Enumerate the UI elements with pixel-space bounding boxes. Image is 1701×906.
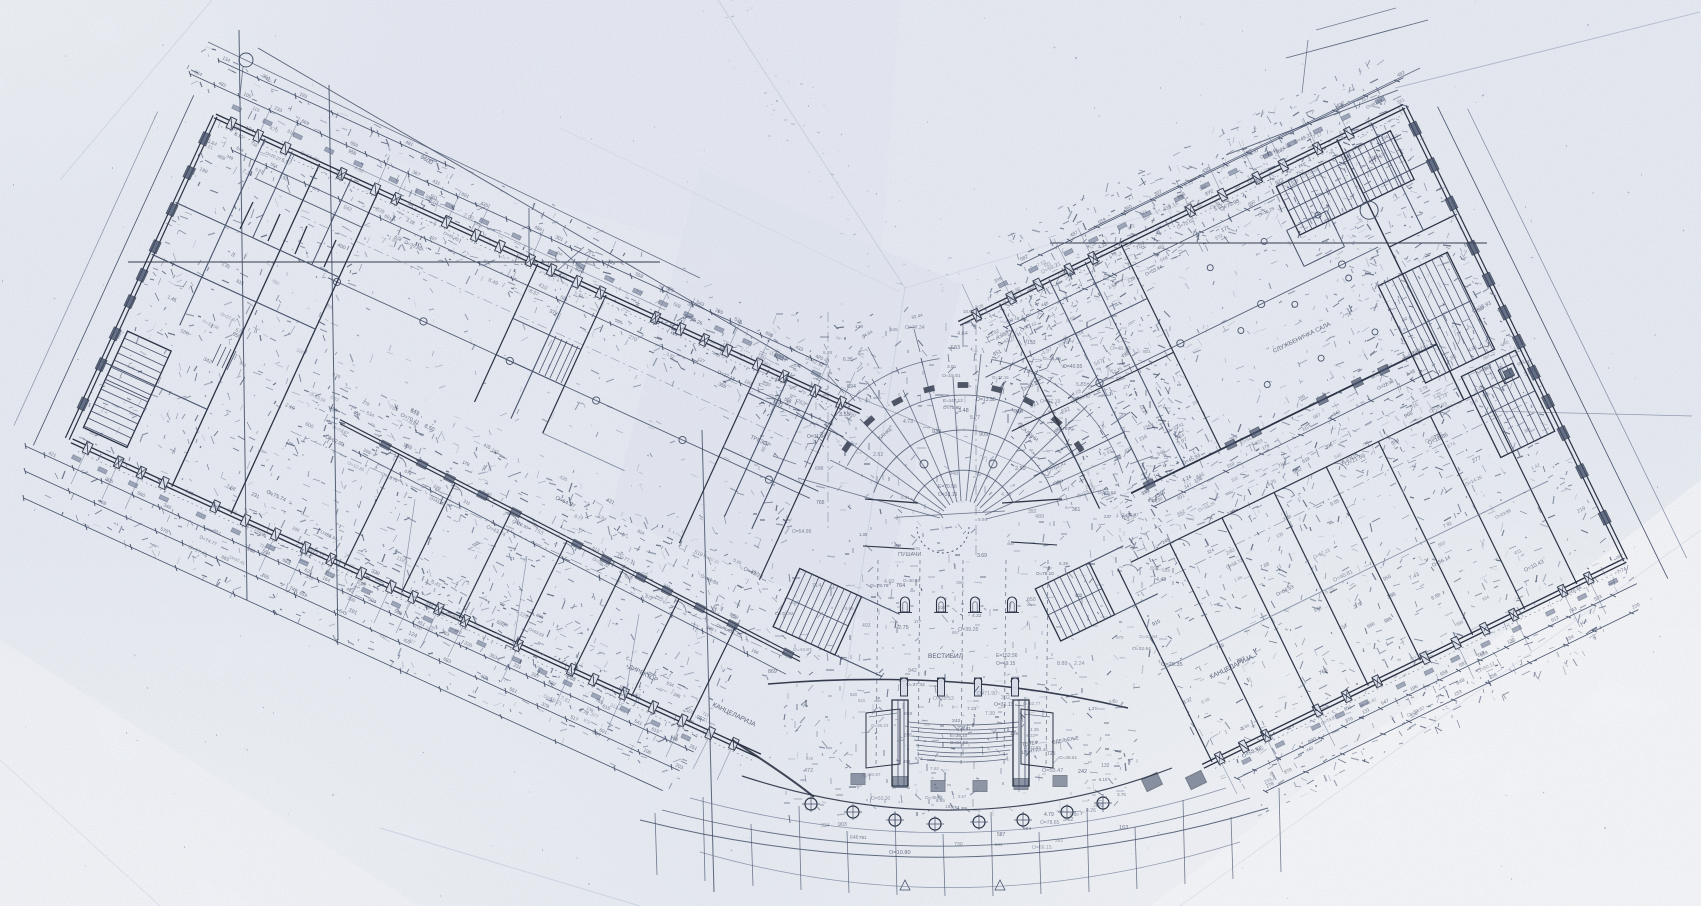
svg-text:10.04: 10.04 [963, 309, 975, 314]
svg-text:402: 402 [1075, 593, 1083, 598]
svg-text:488: 488 [1035, 514, 1044, 520]
svg-text:7.39: 7.39 [985, 711, 995, 717]
svg-text:801: 801 [1143, 349, 1151, 354]
svg-text:869: 869 [768, 669, 777, 675]
svg-text:O=31.13: O=31.13 [994, 702, 1014, 708]
svg-text:237: 237 [1104, 514, 1112, 519]
svg-text:472: 472 [804, 768, 813, 774]
svg-text:334: 334 [821, 823, 830, 829]
svg-text:189: 189 [945, 804, 953, 809]
svg-text:8.60: 8.60 [1109, 699, 1118, 704]
svg-text:793: 793 [1095, 803, 1104, 809]
svg-text:493: 493 [862, 623, 871, 629]
svg-text:132: 132 [1101, 763, 1110, 769]
svg-text:3.75: 3.75 [1117, 792, 1126, 797]
svg-text:Е=147.12: Е=147.12 [943, 398, 963, 403]
svg-text:725: 725 [1047, 751, 1056, 757]
svg-text:О=49.15: О=49.15 [996, 661, 1016, 667]
svg-text:227: 227 [957, 726, 966, 732]
svg-text:O=78.10: O=78.10 [1036, 571, 1054, 576]
svg-text:6.15: 6.15 [1099, 777, 1108, 782]
svg-text:6.39: 6.39 [1059, 561, 1069, 566]
svg-text:O=36.23: O=36.23 [871, 723, 889, 728]
svg-text:970: 970 [1116, 635, 1124, 640]
svg-text:O=67.18: O=67.18 [1040, 399, 1061, 405]
svg-text:O=30.64: O=30.64 [903, 578, 921, 583]
svg-text:764: 764 [896, 583, 905, 589]
svg-text:3.69: 3.69 [977, 553, 987, 559]
svg-text:3.61: 3.61 [947, 364, 957, 370]
svg-text:O=29.35: O=29.35 [1161, 662, 1183, 668]
svg-text:ПУШАЧИ: ПУШАЧИ [898, 552, 921, 558]
svg-text:O=15.51: O=15.51 [942, 373, 961, 379]
svg-text:ВЕСТИБИЛ: ВЕСТИБИЛ [928, 653, 963, 660]
svg-text:O=22.64: O=22.64 [1139, 634, 1158, 640]
svg-text:O=13.55: O=13.55 [976, 397, 996, 403]
svg-text:7.23: 7.23 [967, 706, 977, 712]
svg-text:646: 646 [806, 756, 814, 761]
svg-text:242: 242 [1078, 769, 1087, 775]
svg-text:694: 694 [847, 384, 856, 390]
svg-text:O=75.62: O=75.62 [1098, 490, 1117, 495]
svg-text:916: 916 [1014, 409, 1023, 415]
svg-text:545: 545 [890, 327, 898, 332]
svg-text:7.62: 7.62 [930, 766, 939, 771]
svg-text:8.89: 8.89 [1057, 661, 1068, 667]
svg-text:302: 302 [1001, 695, 1010, 701]
svg-text:386: 386 [956, 580, 964, 585]
svg-text:3.48: 3.48 [958, 408, 969, 414]
svg-text:O=52.77: O=52.77 [1023, 701, 1041, 706]
svg-text:664: 664 [1023, 826, 1031, 832]
svg-text:4.64: 4.64 [957, 331, 968, 337]
svg-text:4.73: 4.73 [903, 419, 913, 425]
svg-text:O=48.40: O=48.40 [1110, 346, 1131, 352]
svg-text:387: 387 [849, 442, 857, 448]
svg-text:520: 520 [850, 692, 858, 697]
svg-text:153: 153 [1027, 340, 1036, 346]
svg-text:587: 587 [997, 832, 1006, 838]
svg-text:909: 909 [979, 432, 988, 438]
svg-text:4.60: 4.60 [884, 579, 894, 585]
svg-text:572: 572 [915, 756, 923, 761]
svg-text:O=28.53: O=28.53 [933, 696, 954, 702]
svg-text:O=40.55: O=40.55 [1063, 364, 1083, 370]
svg-text:698: 698 [815, 466, 824, 472]
svg-text:163: 163 [1119, 825, 1128, 831]
svg-text:9.94: 9.94 [978, 517, 987, 522]
svg-text:O=78.65: O=78.65 [1040, 820, 1060, 826]
svg-text:623: 623 [858, 698, 866, 703]
svg-text:2.75: 2.75 [898, 625, 909, 631]
svg-text:858: 858 [904, 711, 912, 717]
svg-text:581: 581 [995, 842, 1003, 847]
svg-text:O=37.42: O=37.42 [906, 682, 925, 688]
svg-text:O=44.87: O=44.87 [793, 647, 812, 653]
svg-text:262: 262 [1055, 838, 1063, 844]
svg-text:O=30.97: O=30.97 [1121, 512, 1139, 517]
svg-text:2.59: 2.59 [1015, 466, 1026, 472]
svg-text:O=37.15: O=37.15 [992, 375, 1009, 380]
svg-text:9.59: 9.59 [1148, 498, 1157, 503]
svg-text:177: 177 [914, 619, 922, 624]
svg-text:942: 942 [908, 668, 917, 674]
svg-text:4.79: 4.79 [1044, 812, 1054, 818]
svg-text:4.48: 4.48 [1156, 577, 1166, 583]
svg-text:8.99: 8.99 [936, 798, 945, 803]
svg-text:6.41: 6.41 [901, 495, 910, 500]
svg-text:5.77: 5.77 [970, 415, 980, 421]
svg-text:896: 896 [904, 733, 913, 739]
svg-text:1.30: 1.30 [859, 532, 868, 537]
svg-text:545: 545 [1162, 568, 1170, 574]
svg-text:128: 128 [1010, 731, 1018, 737]
svg-text:O=49.61: O=49.61 [1059, 755, 1078, 760]
svg-text:1.37: 1.37 [1088, 706, 1097, 711]
svg-text:930: 930 [932, 429, 941, 435]
svg-text:2.24: 2.24 [1074, 661, 1085, 667]
svg-text:O=66.15: O=66.15 [1032, 845, 1052, 851]
svg-text:657: 657 [952, 630, 960, 635]
svg-text:О=94.93: О=94.93 [950, 740, 968, 745]
svg-text:459: 459 [903, 759, 911, 764]
svg-text:O=75.82: O=75.82 [775, 611, 794, 617]
svg-text:3.62: 3.62 [1063, 817, 1074, 823]
svg-text:650: 650 [1027, 597, 1036, 603]
svg-text:O=39.25: O=39.25 [958, 627, 979, 633]
svg-text:348: 348 [949, 471, 958, 477]
svg-text:646: 646 [850, 835, 859, 841]
svg-text:280: 280 [794, 363, 802, 368]
svg-text:O=50.30: O=50.30 [871, 796, 891, 802]
svg-text:714: 714 [812, 583, 821, 589]
svg-text:1.35: 1.35 [1030, 727, 1039, 732]
svg-text:O=32.64: O=32.64 [1132, 646, 1151, 652]
svg-text:O=11.94: O=11.94 [807, 434, 826, 440]
svg-text:Е=152.56: Е=152.56 [996, 653, 1018, 659]
svg-text:5.35: 5.35 [1076, 382, 1087, 388]
svg-text:O=54.99: O=54.99 [792, 529, 812, 535]
svg-text:181: 181 [913, 546, 921, 551]
svg-text:4.22: 4.22 [972, 613, 982, 619]
svg-text:O=77.34: O=77.34 [905, 325, 925, 331]
svg-text:765: 765 [816, 500, 825, 506]
svg-text:7.53: 7.53 [950, 345, 960, 351]
svg-text:3.57: 3.57 [958, 794, 967, 799]
svg-text:4.75: 4.75 [1001, 492, 1012, 498]
svg-text:6.32: 6.32 [1026, 733, 1036, 738]
svg-text:361: 361 [1072, 507, 1081, 513]
svg-text:791: 791 [859, 835, 867, 840]
svg-text:730: 730 [954, 842, 963, 848]
svg-text:120: 120 [855, 324, 863, 330]
svg-text:3.55: 3.55 [839, 412, 850, 418]
svg-text:O=12.93: O=12.93 [1024, 745, 1041, 750]
svg-text:O=56.97: O=56.97 [862, 772, 881, 778]
svg-text:O=79.91: O=79.91 [1057, 426, 1074, 431]
svg-text:8.78: 8.78 [823, 350, 833, 355]
svg-text:O=10.80: O=10.80 [889, 850, 911, 856]
svg-text:5.56: 5.56 [845, 606, 854, 611]
svg-text:326: 326 [938, 605, 946, 611]
svg-text:2.52: 2.52 [873, 452, 883, 458]
svg-text:903: 903 [838, 822, 847, 828]
svg-text:O=28.85: O=28.85 [1043, 356, 1061, 361]
svg-text:O=53.47: O=53.47 [1042, 768, 1063, 774]
svg-text:892: 892 [1150, 566, 1159, 572]
svg-text:O=71.90: O=71.90 [977, 691, 997, 697]
svg-text:242: 242 [952, 718, 960, 724]
svg-text:6.35: 6.35 [843, 357, 853, 363]
svg-text:Е=39.10: Е=39.10 [950, 733, 968, 738]
